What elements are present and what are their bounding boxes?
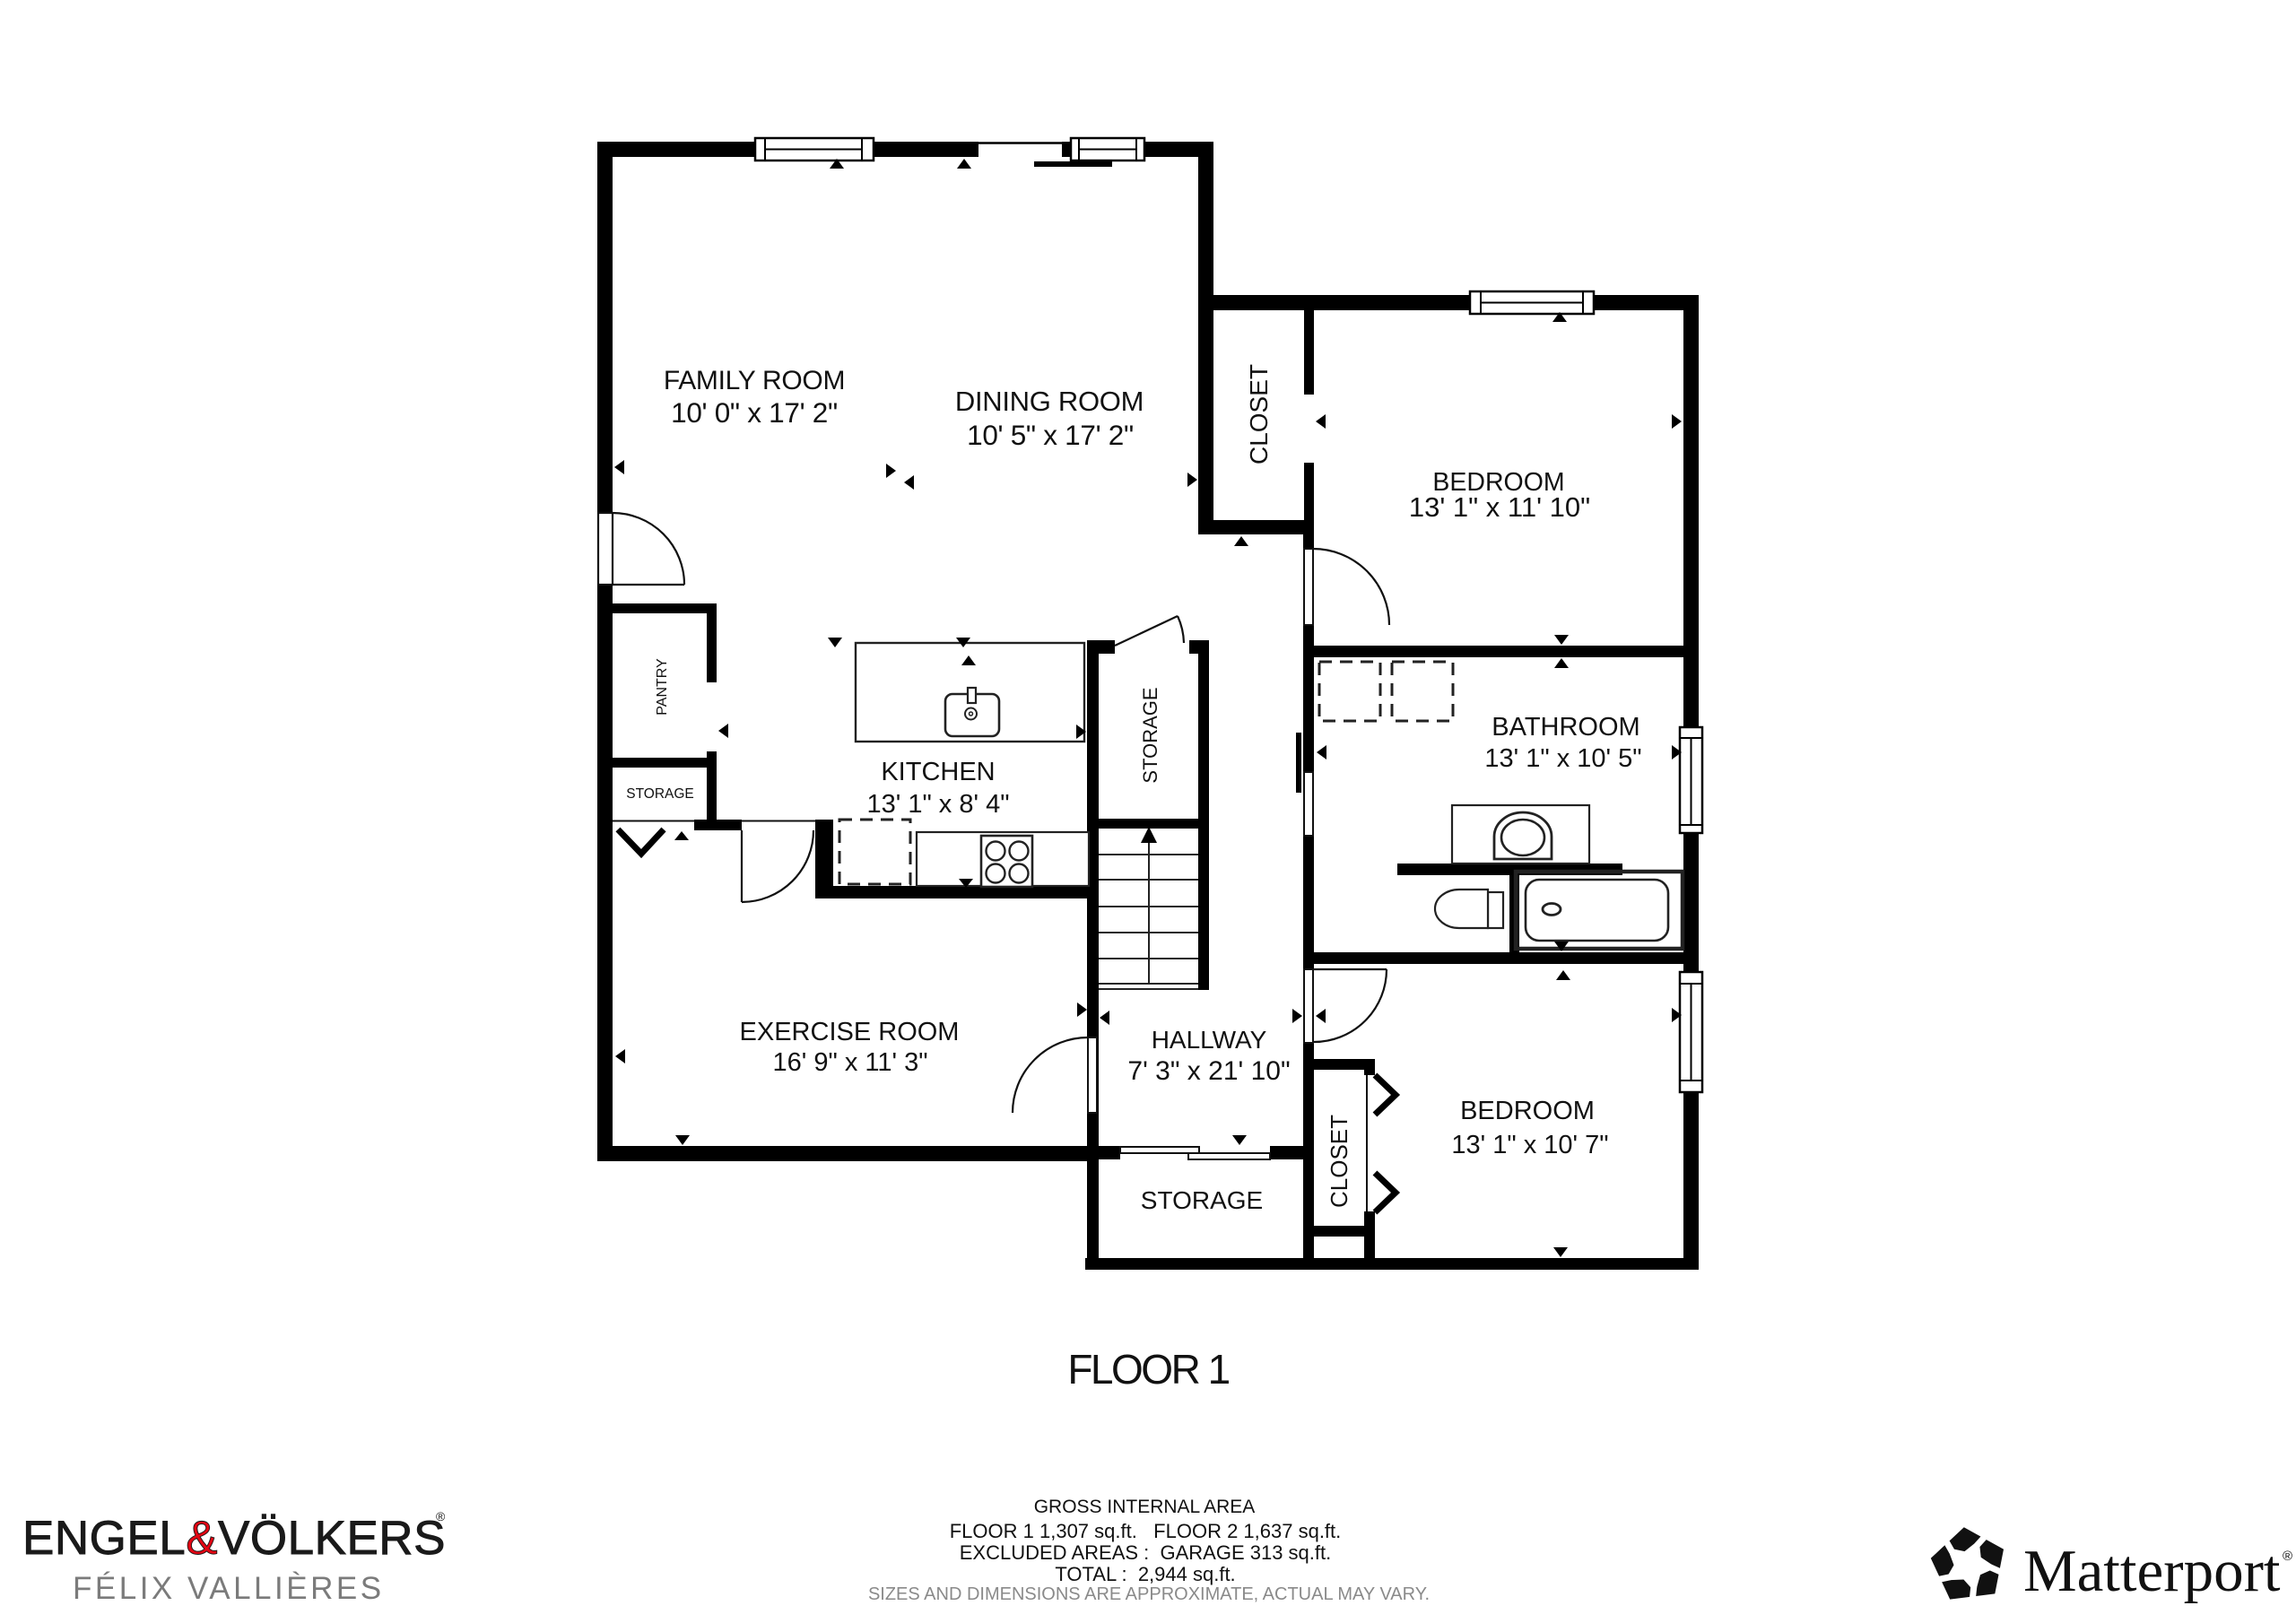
svg-text:STORAGE: STORAGE — [1139, 687, 1161, 783]
svg-text:FAMILY ROOM: FAMILY ROOM — [664, 366, 845, 395]
svg-text:CLOSET: CLOSET — [1326, 1115, 1352, 1208]
svg-text:FLOOR 1: FLOOR 1 — [1067, 1346, 1229, 1393]
svg-text:BEDROOM: BEDROOM — [1460, 1097, 1595, 1125]
svg-text:13' 1" x 11' 10": 13' 1" x 11' 10" — [1409, 491, 1590, 523]
svg-text:®: ® — [436, 1509, 446, 1523]
svg-text:13' 1" x 8' 4": 13' 1" x 8' 4" — [866, 790, 1009, 819]
svg-text:EXCLUDED AREAS : GARAGE 313 s: EXCLUDED AREAS : GARAGE 313 sq.ft. — [960, 1541, 1332, 1564]
svg-text:STORAGE: STORAGE — [1141, 1186, 1263, 1214]
svg-text:FLOOR 1 1,307 sq.ft. FLOOR 2: FLOOR 1 1,307 sq.ft. FLOOR 2 1,637 sq.ft… — [950, 1520, 1342, 1542]
svg-text:ENGEL&VÖLKERS: ENGEL&VÖLKERS — [22, 1512, 446, 1565]
svg-text:GROSS INTERNAL AREA: GROSS INTERNAL AREA — [1034, 1497, 1256, 1517]
svg-text:13' 1" x 10' 5": 13' 1" x 10' 5" — [1484, 744, 1641, 773]
svg-text:Matterport: Matterport — [2023, 1538, 2281, 1604]
svg-text:®: ® — [2283, 1549, 2292, 1564]
svg-text:10' 5" x 17' 2": 10' 5" x 17' 2" — [967, 419, 1134, 451]
svg-text:13' 1" x 10' 7": 13' 1" x 10' 7" — [1451, 1131, 1608, 1159]
svg-text:10' 0" x 17' 2": 10' 0" x 17' 2" — [671, 396, 838, 429]
svg-text:EXERCISE ROOM: EXERCISE ROOM — [740, 1018, 960, 1046]
svg-text:HALLWAY: HALLWAY — [1152, 1026, 1267, 1054]
svg-text:7' 3" x 21' 10": 7' 3" x 21' 10" — [1127, 1056, 1290, 1086]
svg-text:SIZES AND DIMENSIONS ARE APPRO: SIZES AND DIMENSIONS ARE APPROXIMATE, AC… — [868, 1584, 1430, 1604]
svg-text:BATHROOM: BATHROOM — [1492, 713, 1639, 742]
svg-text:TOTAL : 2,944 sq.ft.: TOTAL : 2,944 sq.ft. — [1055, 1563, 1235, 1585]
svg-text:DINING ROOM: DINING ROOM — [955, 386, 1144, 417]
svg-text:FÉLIX VALLIÈRES: FÉLIX VALLIÈRES — [73, 1571, 385, 1606]
svg-text:CLOSET: CLOSET — [1245, 364, 1273, 464]
svg-text:16' 9" x 11' 3": 16' 9" x 11' 3" — [772, 1048, 927, 1077]
svg-text:PANTRY: PANTRY — [655, 658, 670, 716]
svg-text:KITCHEN: KITCHEN — [881, 758, 995, 786]
svg-text:STORAGE: STORAGE — [626, 786, 694, 802]
